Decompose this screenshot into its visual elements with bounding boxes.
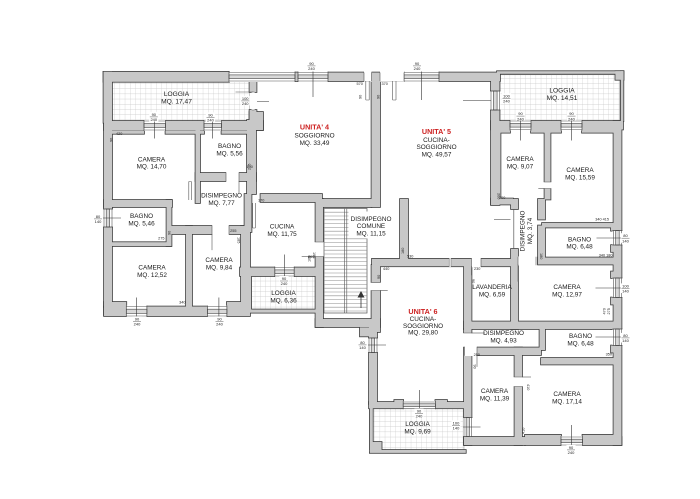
svg-text:MQ. 7,77: MQ. 7,77 bbox=[208, 200, 235, 207]
svg-text:SOGGIORNO: SOGGIORNO bbox=[294, 133, 334, 140]
svg-text:140: 140 bbox=[622, 338, 629, 343]
svg-text:CUCINA: CUCINA bbox=[270, 224, 295, 231]
svg-text:MQ. 17,14: MQ. 17,14 bbox=[552, 398, 582, 405]
svg-text:90: 90 bbox=[377, 275, 381, 279]
svg-text:90: 90 bbox=[167, 231, 171, 235]
svg-text:CAMERA: CAMERA bbox=[205, 257, 233, 264]
svg-text:MQ. 6,48: MQ. 6,48 bbox=[566, 244, 593, 251]
svg-text:MQ. 3,74: MQ. 3,74 bbox=[527, 217, 534, 244]
svg-text:BAGNO: BAGNO bbox=[568, 236, 591, 243]
svg-text:140: 140 bbox=[453, 426, 460, 431]
svg-text:240: 240 bbox=[242, 101, 249, 106]
svg-text:470: 470 bbox=[603, 308, 607, 314]
svg-text:370: 370 bbox=[382, 82, 388, 86]
svg-text:DISIMPEGNO: DISIMPEGNO bbox=[520, 211, 527, 252]
svg-text:90: 90 bbox=[110, 138, 114, 142]
svg-text:CAMERA: CAMERA bbox=[138, 265, 166, 272]
svg-text:MQ. 15,59: MQ. 15,59 bbox=[565, 174, 595, 181]
svg-text:CAMERA: CAMERA bbox=[138, 156, 166, 163]
svg-text:MQ. 6,59: MQ. 6,59 bbox=[479, 291, 506, 298]
svg-text:410: 410 bbox=[522, 428, 526, 434]
svg-text:275: 275 bbox=[158, 237, 164, 241]
svg-text:90: 90 bbox=[473, 365, 477, 369]
svg-text:MQ. 11,75: MQ. 11,75 bbox=[267, 231, 297, 238]
svg-text:240: 240 bbox=[281, 281, 288, 286]
svg-text:350: 350 bbox=[606, 353, 612, 357]
svg-text:MQ. 11,39: MQ. 11,39 bbox=[480, 395, 510, 402]
svg-text:BAGNO: BAGNO bbox=[218, 143, 241, 150]
svg-text:420: 420 bbox=[116, 132, 122, 136]
svg-text:MQ. 12,97: MQ. 12,97 bbox=[552, 291, 582, 298]
svg-text:MQ. 9,84: MQ. 9,84 bbox=[206, 264, 233, 271]
svg-text:CAMERA: CAMERA bbox=[566, 167, 594, 174]
svg-text:UNITA' 6: UNITA' 6 bbox=[408, 307, 437, 316]
svg-text:MQ. 17,47: MQ. 17,47 bbox=[161, 98, 192, 105]
svg-text:LOGGIA: LOGGIA bbox=[271, 290, 296, 297]
svg-text:340 415: 340 415 bbox=[595, 218, 609, 222]
svg-text:240: 240 bbox=[568, 116, 575, 121]
svg-text:MQ. 12,52: MQ. 12,52 bbox=[137, 272, 167, 279]
svg-text:CUCINA-: CUCINA- bbox=[423, 137, 450, 144]
svg-text:CAMERA: CAMERA bbox=[506, 156, 534, 163]
svg-text:275: 275 bbox=[607, 308, 611, 314]
svg-text:255: 255 bbox=[474, 353, 480, 357]
svg-text:DISIMPEGNO: DISIMPEGNO bbox=[483, 330, 524, 337]
svg-text:MQ. 9,69: MQ. 9,69 bbox=[404, 428, 431, 435]
svg-text:240: 240 bbox=[503, 99, 510, 104]
svg-text:230: 230 bbox=[474, 267, 480, 271]
svg-text:340 180: 340 180 bbox=[599, 254, 613, 258]
svg-text:240: 240 bbox=[207, 118, 214, 123]
svg-text:MQ. 4,93: MQ. 4,93 bbox=[490, 337, 517, 344]
svg-text:MQ. 6,48: MQ. 6,48 bbox=[567, 340, 594, 347]
svg-text:90: 90 bbox=[471, 279, 475, 283]
svg-text:240: 240 bbox=[216, 322, 223, 327]
svg-text:LOGGIA: LOGGIA bbox=[164, 91, 190, 98]
svg-text:CAMERA: CAMERA bbox=[553, 391, 581, 398]
svg-text:LAVANDERIA: LAVANDERIA bbox=[472, 284, 512, 291]
svg-text:240: 240 bbox=[150, 117, 157, 122]
svg-text:140: 140 bbox=[359, 345, 366, 350]
svg-text:MQ. 11,15: MQ. 11,15 bbox=[356, 230, 386, 237]
svg-text:140: 140 bbox=[622, 289, 629, 294]
svg-text:180: 180 bbox=[539, 253, 543, 259]
svg-text:440: 440 bbox=[383, 267, 389, 271]
svg-text:185: 185 bbox=[237, 237, 241, 243]
svg-text:180: 180 bbox=[401, 248, 405, 254]
svg-text:240: 240 bbox=[568, 450, 575, 455]
svg-text:UNITA' 5: UNITA' 5 bbox=[422, 127, 451, 136]
svg-text:MQ. 49,57: MQ. 49,57 bbox=[422, 152, 452, 159]
svg-text:240: 240 bbox=[416, 414, 423, 419]
svg-text:MQ. 14,70: MQ. 14,70 bbox=[137, 164, 167, 171]
svg-text:410: 410 bbox=[526, 384, 530, 390]
svg-text:240: 240 bbox=[517, 116, 524, 121]
svg-text:240: 240 bbox=[134, 322, 141, 327]
svg-text:255: 255 bbox=[230, 229, 236, 233]
svg-text:SOGGIORNO: SOGGIORNO bbox=[416, 144, 456, 151]
svg-text:MQ. 5,56: MQ. 5,56 bbox=[216, 150, 243, 157]
svg-text:DISIMPEGNO: DISIMPEGNO bbox=[201, 193, 242, 200]
svg-text:MQ. 14,51: MQ. 14,51 bbox=[547, 95, 578, 102]
svg-text:BAGNO: BAGNO bbox=[130, 213, 153, 220]
svg-text:90: 90 bbox=[377, 95, 381, 99]
svg-text:MQ. 9,07: MQ. 9,07 bbox=[507, 163, 534, 170]
svg-text:200: 200 bbox=[499, 196, 505, 200]
svg-text:240: 240 bbox=[308, 66, 315, 71]
svg-text:240: 240 bbox=[414, 66, 421, 71]
svg-text:MQ. 33,49: MQ. 33,49 bbox=[300, 140, 330, 147]
svg-text:215: 215 bbox=[248, 164, 252, 170]
svg-text:MQ. 29,80: MQ. 29,80 bbox=[408, 330, 438, 337]
svg-text:170: 170 bbox=[258, 199, 264, 203]
svg-text:140: 140 bbox=[95, 219, 102, 224]
svg-text:CAMERA: CAMERA bbox=[553, 284, 581, 291]
svg-text:570: 570 bbox=[357, 82, 363, 86]
svg-text:COMUNE: COMUNE bbox=[357, 223, 385, 230]
svg-text:UNITA' 4: UNITA' 4 bbox=[300, 123, 329, 132]
svg-text:90: 90 bbox=[359, 95, 363, 99]
svg-text:530: 530 bbox=[407, 255, 413, 259]
svg-text:DISIMPEGNO: DISIMPEGNO bbox=[351, 216, 392, 223]
svg-text:BAGNO: BAGNO bbox=[569, 333, 592, 340]
svg-text:LOGGIA: LOGGIA bbox=[549, 88, 575, 95]
svg-text:CAMERA: CAMERA bbox=[481, 388, 509, 395]
svg-text:105: 105 bbox=[308, 256, 312, 262]
svg-text:MQ. 6,36: MQ. 6,36 bbox=[270, 297, 297, 304]
svg-text:LOGGIA: LOGGIA bbox=[405, 421, 430, 428]
svg-text:340: 340 bbox=[179, 301, 185, 305]
svg-text:140: 140 bbox=[622, 238, 629, 243]
svg-text:MQ. 5,46: MQ. 5,46 bbox=[128, 220, 155, 227]
